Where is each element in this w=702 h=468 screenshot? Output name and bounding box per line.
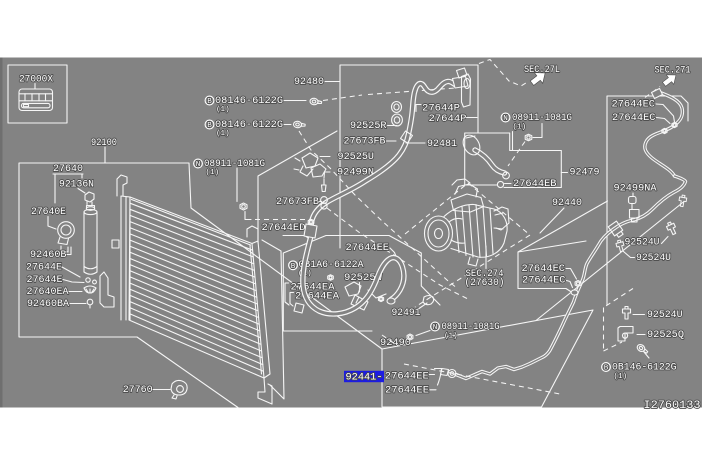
svg-text:27644P: 27644P [422,104,460,115]
svg-text:92479: 92479 [570,168,600,179]
svg-text:27673FB: 27673FB [344,137,386,148]
svg-text:92490: 92490 [380,338,411,349]
svg-text:B: B [207,122,212,130]
svg-text:27644P: 27644P [429,114,467,125]
svg-text:92441-: 92441- [346,373,383,384]
svg-text:92524U: 92524U [625,237,660,248]
svg-text:08911-1081G: 08911-1081G [512,113,572,124]
svg-text:27644E: 27644E [27,275,63,286]
svg-text:B: B [207,98,212,106]
svg-text:92525U: 92525U [338,152,375,163]
svg-text:(1): (1) [444,333,458,341]
svg-text:27644EC: 27644EC [612,100,656,111]
svg-text:92136N: 92136N [59,180,94,191]
svg-text:92524U: 92524U [636,252,671,263]
svg-text:92491: 92491 [392,308,421,319]
svg-text:N: N [196,161,201,169]
svg-text:27644EE: 27644EE [385,385,429,396]
svg-text:N: N [433,324,438,332]
svg-text:N: N [503,115,508,123]
svg-text:27640EA: 27640EA [27,287,69,298]
svg-text:(27630): (27630) [465,277,505,289]
svg-text:B: B [604,365,609,373]
svg-text:92440: 92440 [552,198,582,209]
svg-text:92481: 92481 [427,139,457,150]
svg-text:92460BA: 92460BA [27,299,69,310]
svg-text:(1): (1) [206,169,220,177]
svg-text:27000X: 27000X [19,75,53,86]
svg-text:08911-1081G: 08911-1081G [442,322,500,333]
svg-text:27644ED: 27644ED [262,223,306,234]
svg-text:I2760133: I2760133 [644,400,701,412]
svg-text:92525Q: 92525Q [647,330,684,341]
svg-text:(1): (1) [216,130,230,138]
svg-text:27644E: 27644E [26,263,62,274]
svg-text:27644EC: 27644EC [522,276,566,287]
svg-text:(1): (1) [513,124,527,132]
svg-text:(1): (1) [614,373,628,381]
svg-text:92499NA: 92499NA [614,184,657,195]
svg-text:27644EB: 27644EB [513,179,557,190]
svg-text:27644EC: 27644EC [522,264,566,275]
svg-text:27644EC: 27644EC [612,113,656,124]
svg-text:B: B [291,263,296,271]
svg-text:27644EA: 27644EA [295,292,339,303]
svg-text:27760: 27760 [123,385,153,396]
svg-text:92480: 92480 [294,77,324,88]
svg-text:27644EE: 27644EE [385,372,429,383]
svg-text:27644EE: 27644EE [346,243,390,254]
svg-text:92525R: 92525R [350,121,387,132]
svg-text:92460B: 92460B [30,250,67,261]
svg-text:92524U: 92524U [647,309,683,320]
svg-text:27673FB: 27673FB [276,197,319,208]
svg-text:92100: 92100 [91,138,117,149]
svg-text:(1): (1) [216,106,230,114]
